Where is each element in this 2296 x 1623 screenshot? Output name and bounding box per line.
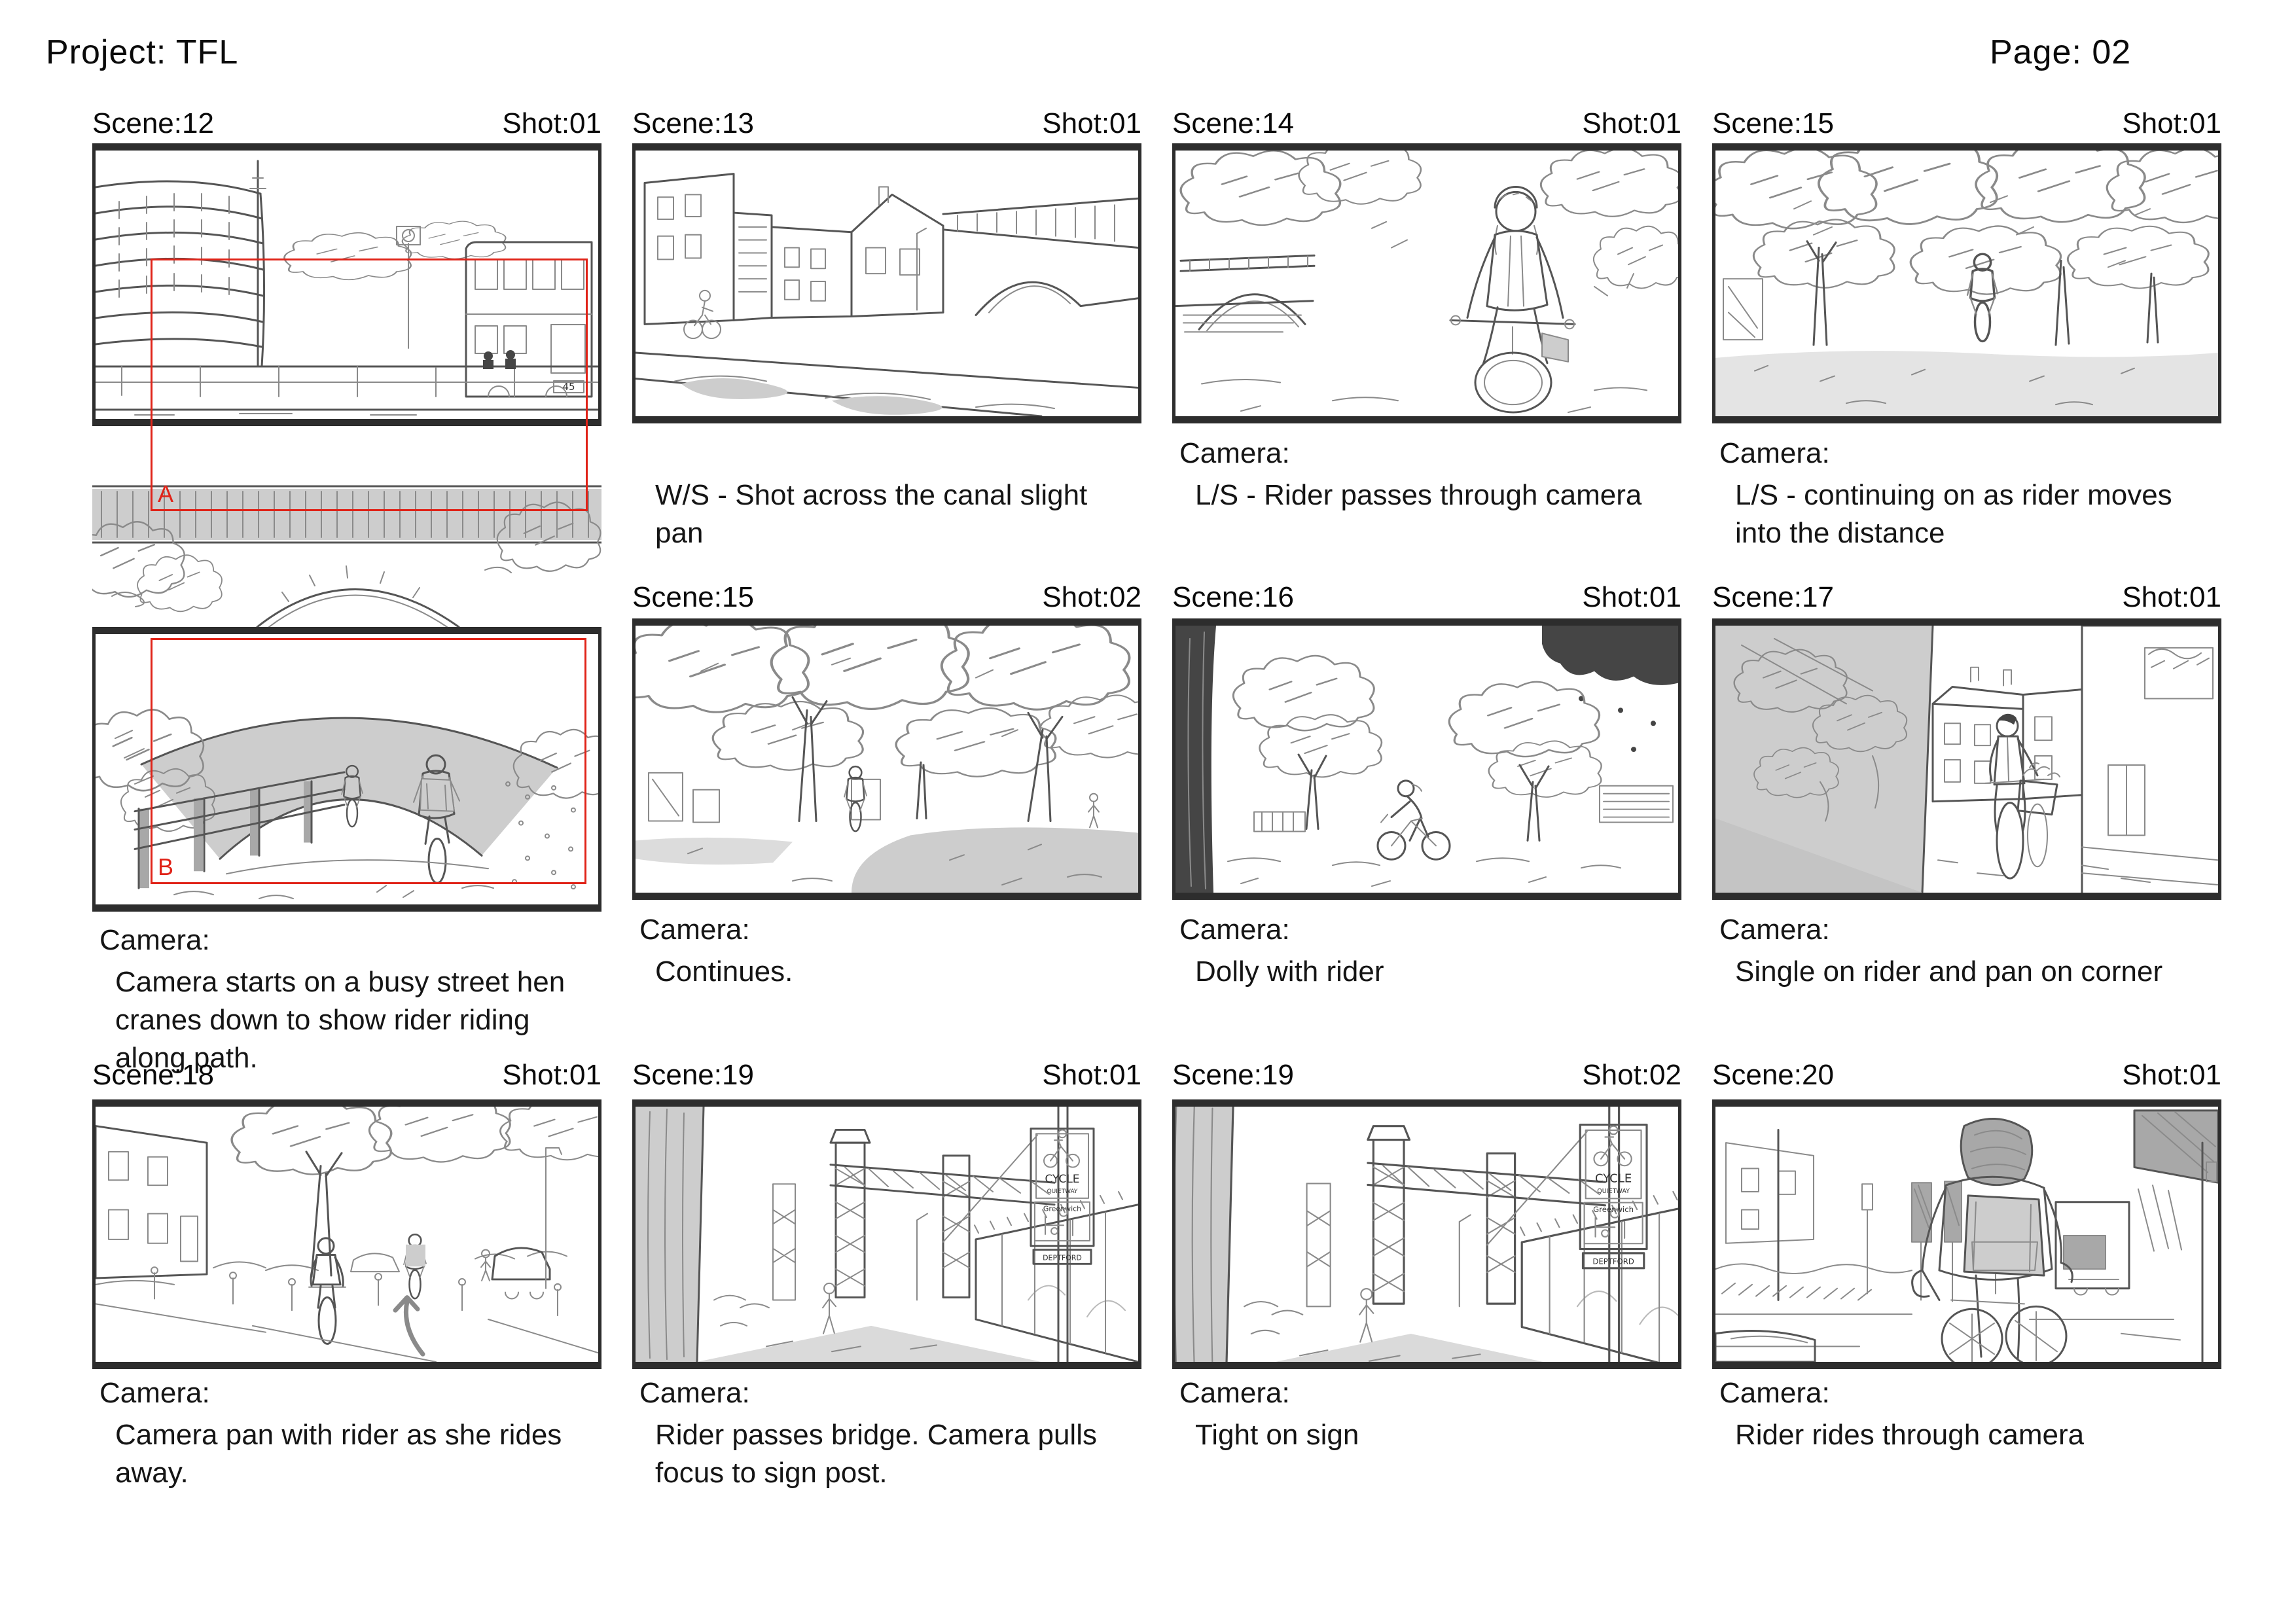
shot-label: Shot:01 xyxy=(2122,1059,2221,1092)
scene-label: Scene:12 xyxy=(92,107,214,140)
scene13-canal-street-sketch xyxy=(636,151,1138,416)
scene18-frame xyxy=(92,1099,601,1369)
shot-label: Shot:01 xyxy=(502,107,601,140)
scene17-frame xyxy=(1712,618,2221,900)
shot-label: Shot:01 xyxy=(1582,107,1681,140)
scene20-frame xyxy=(1712,1099,2221,1369)
scene20-rider-through-sketch xyxy=(1715,1107,2218,1362)
scene-label: Scene:17 xyxy=(1712,581,1834,614)
scene-label: Scene:14 xyxy=(1172,107,1294,140)
viaduct-wall xyxy=(975,1192,1138,1362)
shot-label: Shot:01 xyxy=(502,1059,601,1092)
right-building xyxy=(2082,626,2218,893)
sign-text-cycle: CYCLE xyxy=(1045,1172,1079,1185)
canal-bridge xyxy=(1181,255,1314,330)
scene17-caption: Camera: Single on rider and pan on corne… xyxy=(1719,911,2218,991)
scene-label: Scene:16 xyxy=(1172,581,1294,614)
foreground-tree-trunk xyxy=(1175,626,1216,893)
frame-marker-a: A xyxy=(151,259,588,511)
cycle-sign-post: CYCLE QUIETWAY Greenwich DEPTFORD xyxy=(943,1107,1094,1362)
scene-label: Scene:15 xyxy=(632,581,754,614)
scene19s1-bridge-sketch: CYCLE QUIETWAY Greenwich DEPTFORD xyxy=(636,1107,1138,1362)
scene19s2-caption: Camera: Tight on sign xyxy=(1179,1374,1678,1454)
scene13-frame xyxy=(632,143,1141,423)
scene15s1-park-sketch xyxy=(1715,151,2218,416)
scene19s2-bridge-sketch xyxy=(1175,1107,1678,1362)
scene16-frame xyxy=(1172,618,1681,900)
scene14-towpath-rider-sketch xyxy=(1175,151,1678,416)
scene17-street-corner-sketch xyxy=(1715,626,2218,893)
scene-label: Scene:19 xyxy=(632,1059,754,1092)
scene12-caption: Camera: Camera starts on a busy street h… xyxy=(99,921,598,1077)
rider-through-camera xyxy=(1450,187,1575,412)
scene15s1-caption: Camera: L/S - continuing on as rider mov… xyxy=(1719,435,2218,552)
shot-label: Shot:01 xyxy=(1582,581,1681,614)
frame-marker-b-label: B xyxy=(158,853,173,881)
camera-note: Tight on sign xyxy=(1179,1416,1678,1454)
distant-rider xyxy=(844,766,867,831)
scene-label: Scene:19 xyxy=(1172,1059,1294,1092)
panel-scene16-header: Scene:16 Shot:01 xyxy=(1172,581,1681,614)
camera-label: Camera: xyxy=(1179,1374,1678,1416)
camera-label: Camera: xyxy=(99,921,598,963)
distant-figure xyxy=(1088,794,1099,828)
sign-text-deptford: DEPTFORD xyxy=(1043,1253,1082,1262)
camera-note: Dolly with rider xyxy=(1179,953,1678,991)
camera-note: W/S - Shot across the canal slight pan xyxy=(639,476,1138,552)
scene19s1-caption: Camera: Rider passes bridge. Camera pull… xyxy=(639,1374,1138,1492)
frame-marker-a-label: A xyxy=(158,480,173,508)
panel-scene12-header: Scene:12 Shot:01 xyxy=(92,107,601,140)
scene13-caption: W/S - Shot across the canal slight pan xyxy=(639,435,1138,552)
scene-label: Scene:13 xyxy=(632,107,754,140)
camera-label xyxy=(639,435,1138,476)
scene16-caption: Camera: Dolly with rider xyxy=(1179,911,1678,991)
camera-label: Camera: xyxy=(1719,911,2218,953)
rider-profile xyxy=(1378,781,1450,859)
scene16-dolly-sketch xyxy=(1175,626,1678,893)
bollards xyxy=(151,1267,561,1315)
shot-label: Shot:01 xyxy=(1042,1059,1141,1092)
dark-canopy xyxy=(1542,626,1678,685)
frame-marker-b: B xyxy=(151,638,586,884)
pedestrian xyxy=(481,1250,490,1281)
small-cyclist xyxy=(684,291,721,338)
scene20-caption: Camera: Rider rides through camera xyxy=(1719,1374,2218,1454)
rider-away xyxy=(404,1234,426,1298)
rider-toward-camera xyxy=(309,1238,346,1344)
gantry-towers xyxy=(773,1130,969,1300)
shot-label: Shot:01 xyxy=(1042,107,1141,140)
pan-arrow xyxy=(395,1298,423,1355)
scene19s1-frame: CYCLE QUIETWAY Greenwich DEPTFORD xyxy=(632,1099,1141,1369)
camera-note: L/S - continuing on as rider moves into … xyxy=(1719,476,2218,552)
camera-note: Single on rider and pan on corner xyxy=(1719,953,2218,991)
rider-back-large xyxy=(1912,1118,2073,1362)
bridge xyxy=(943,198,1138,315)
camera-note: Rider passes bridge. Camera pulls focus … xyxy=(639,1416,1138,1492)
panel-scene17-header: Scene:17 Shot:01 xyxy=(1712,581,2221,614)
page-number: Page: 02 xyxy=(1990,33,2131,72)
camera-label: Camera: xyxy=(99,1374,598,1416)
camera-label: Camera: xyxy=(1179,435,1678,476)
storyboard-page: Project: TFL Page: 02 Scene:12 Shot:01 xyxy=(0,0,2296,1623)
concrete-pillar xyxy=(636,1107,704,1362)
project-title: Project: TFL xyxy=(46,33,238,72)
camera-label: Camera: xyxy=(639,1374,1138,1416)
camera-note: Camera pan with rider as she rides away. xyxy=(99,1416,598,1492)
camera-note: Continues. xyxy=(639,953,1138,991)
cycle-icon xyxy=(1044,1130,1079,1167)
walking-figure xyxy=(823,1283,836,1334)
camera-label: Camera: xyxy=(1719,435,2218,476)
scene15s2-park-sketch xyxy=(636,626,1138,893)
camera-label: Camera: xyxy=(1179,911,1678,953)
house-left xyxy=(96,1126,207,1278)
panel-scene15s2-header: Scene:15 Shot:02 xyxy=(632,581,1141,614)
scene18-street-sketch xyxy=(96,1107,598,1362)
shot-label: Shot:01 xyxy=(2122,107,2221,140)
panel-scene19s2-header: Scene:19 Shot:02 xyxy=(1172,1059,1681,1092)
scene19s2-frame xyxy=(1172,1099,1681,1369)
panel-scene13-header: Scene:13 Shot:01 xyxy=(632,107,1141,140)
scene14-frame xyxy=(1172,143,1681,423)
scene-label: Scene:18 xyxy=(92,1059,214,1092)
scene14-caption: Camera: L/S - Rider passes through camer… xyxy=(1179,435,1678,514)
scene-label: Scene:15 xyxy=(1712,107,1834,140)
scene18-caption: Camera: Camera pan with rider as she rid… xyxy=(99,1374,598,1492)
panel-scene15s1-header: Scene:15 Shot:01 xyxy=(1712,107,2221,140)
camera-label: Camera: xyxy=(639,911,1138,953)
scene15s2-frame xyxy=(632,618,1141,900)
panel-scene18-header: Scene:18 Shot:01 xyxy=(92,1059,601,1092)
panel-scene19s1-header: Scene:19 Shot:01 xyxy=(632,1059,1141,1092)
scene15s2-caption: Camera: Continues. xyxy=(639,911,1138,991)
van xyxy=(2056,1202,2129,1295)
scene-label: Scene:20 xyxy=(1712,1059,1834,1092)
parked-cars xyxy=(351,1248,550,1299)
shot-label: Shot:01 xyxy=(2122,581,2221,614)
camera-note: L/S - Rider passes through camera xyxy=(1179,476,1678,514)
camera-label: Camera: xyxy=(1719,1374,2218,1416)
scene15s1-frame xyxy=(1712,143,2221,423)
sign-text-quietway: QUIETWAY xyxy=(1047,1188,1078,1195)
shot-label: Shot:02 xyxy=(1582,1059,1681,1092)
panel-scene20-header: Scene:20 Shot:01 xyxy=(1712,1059,2221,1092)
shot-label: Shot:02 xyxy=(1042,581,1141,614)
panel-scene14-header: Scene:14 Shot:01 xyxy=(1172,107,1681,140)
camera-note: Rider rides through camera xyxy=(1719,1416,2218,1454)
